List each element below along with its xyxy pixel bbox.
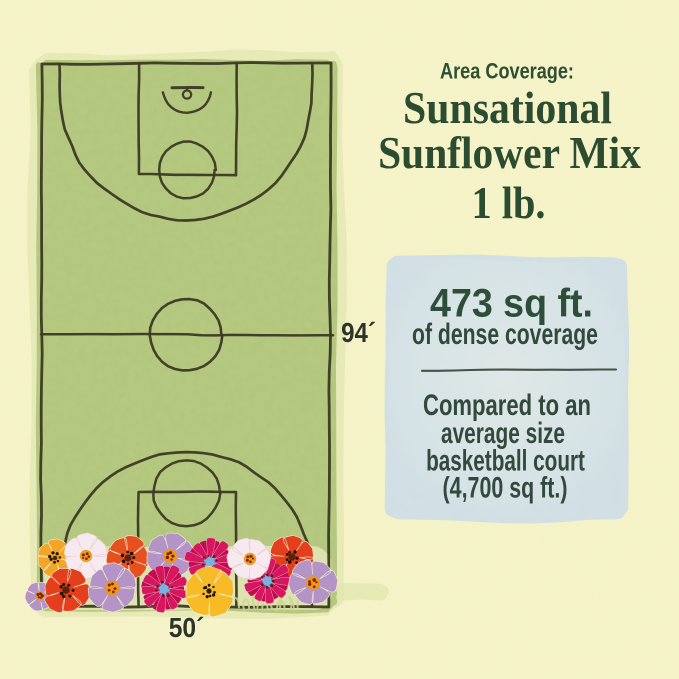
svg-text:Sunsational: Sunsational [403, 82, 612, 133]
svg-text:of dense coverage: of dense coverage [412, 316, 598, 351]
svg-text:94´: 94´ [341, 316, 376, 348]
svg-text:(4,700 sq ft.): (4,700 sq ft.) [443, 470, 568, 505]
svg-text:Sunflower Mix: Sunflower Mix [378, 128, 641, 178]
svg-text:1 lb.: 1 lb. [472, 178, 546, 229]
svg-text:Area Coverage:: Area Coverage: [440, 60, 574, 84]
svg-text:50´: 50´ [169, 612, 205, 644]
